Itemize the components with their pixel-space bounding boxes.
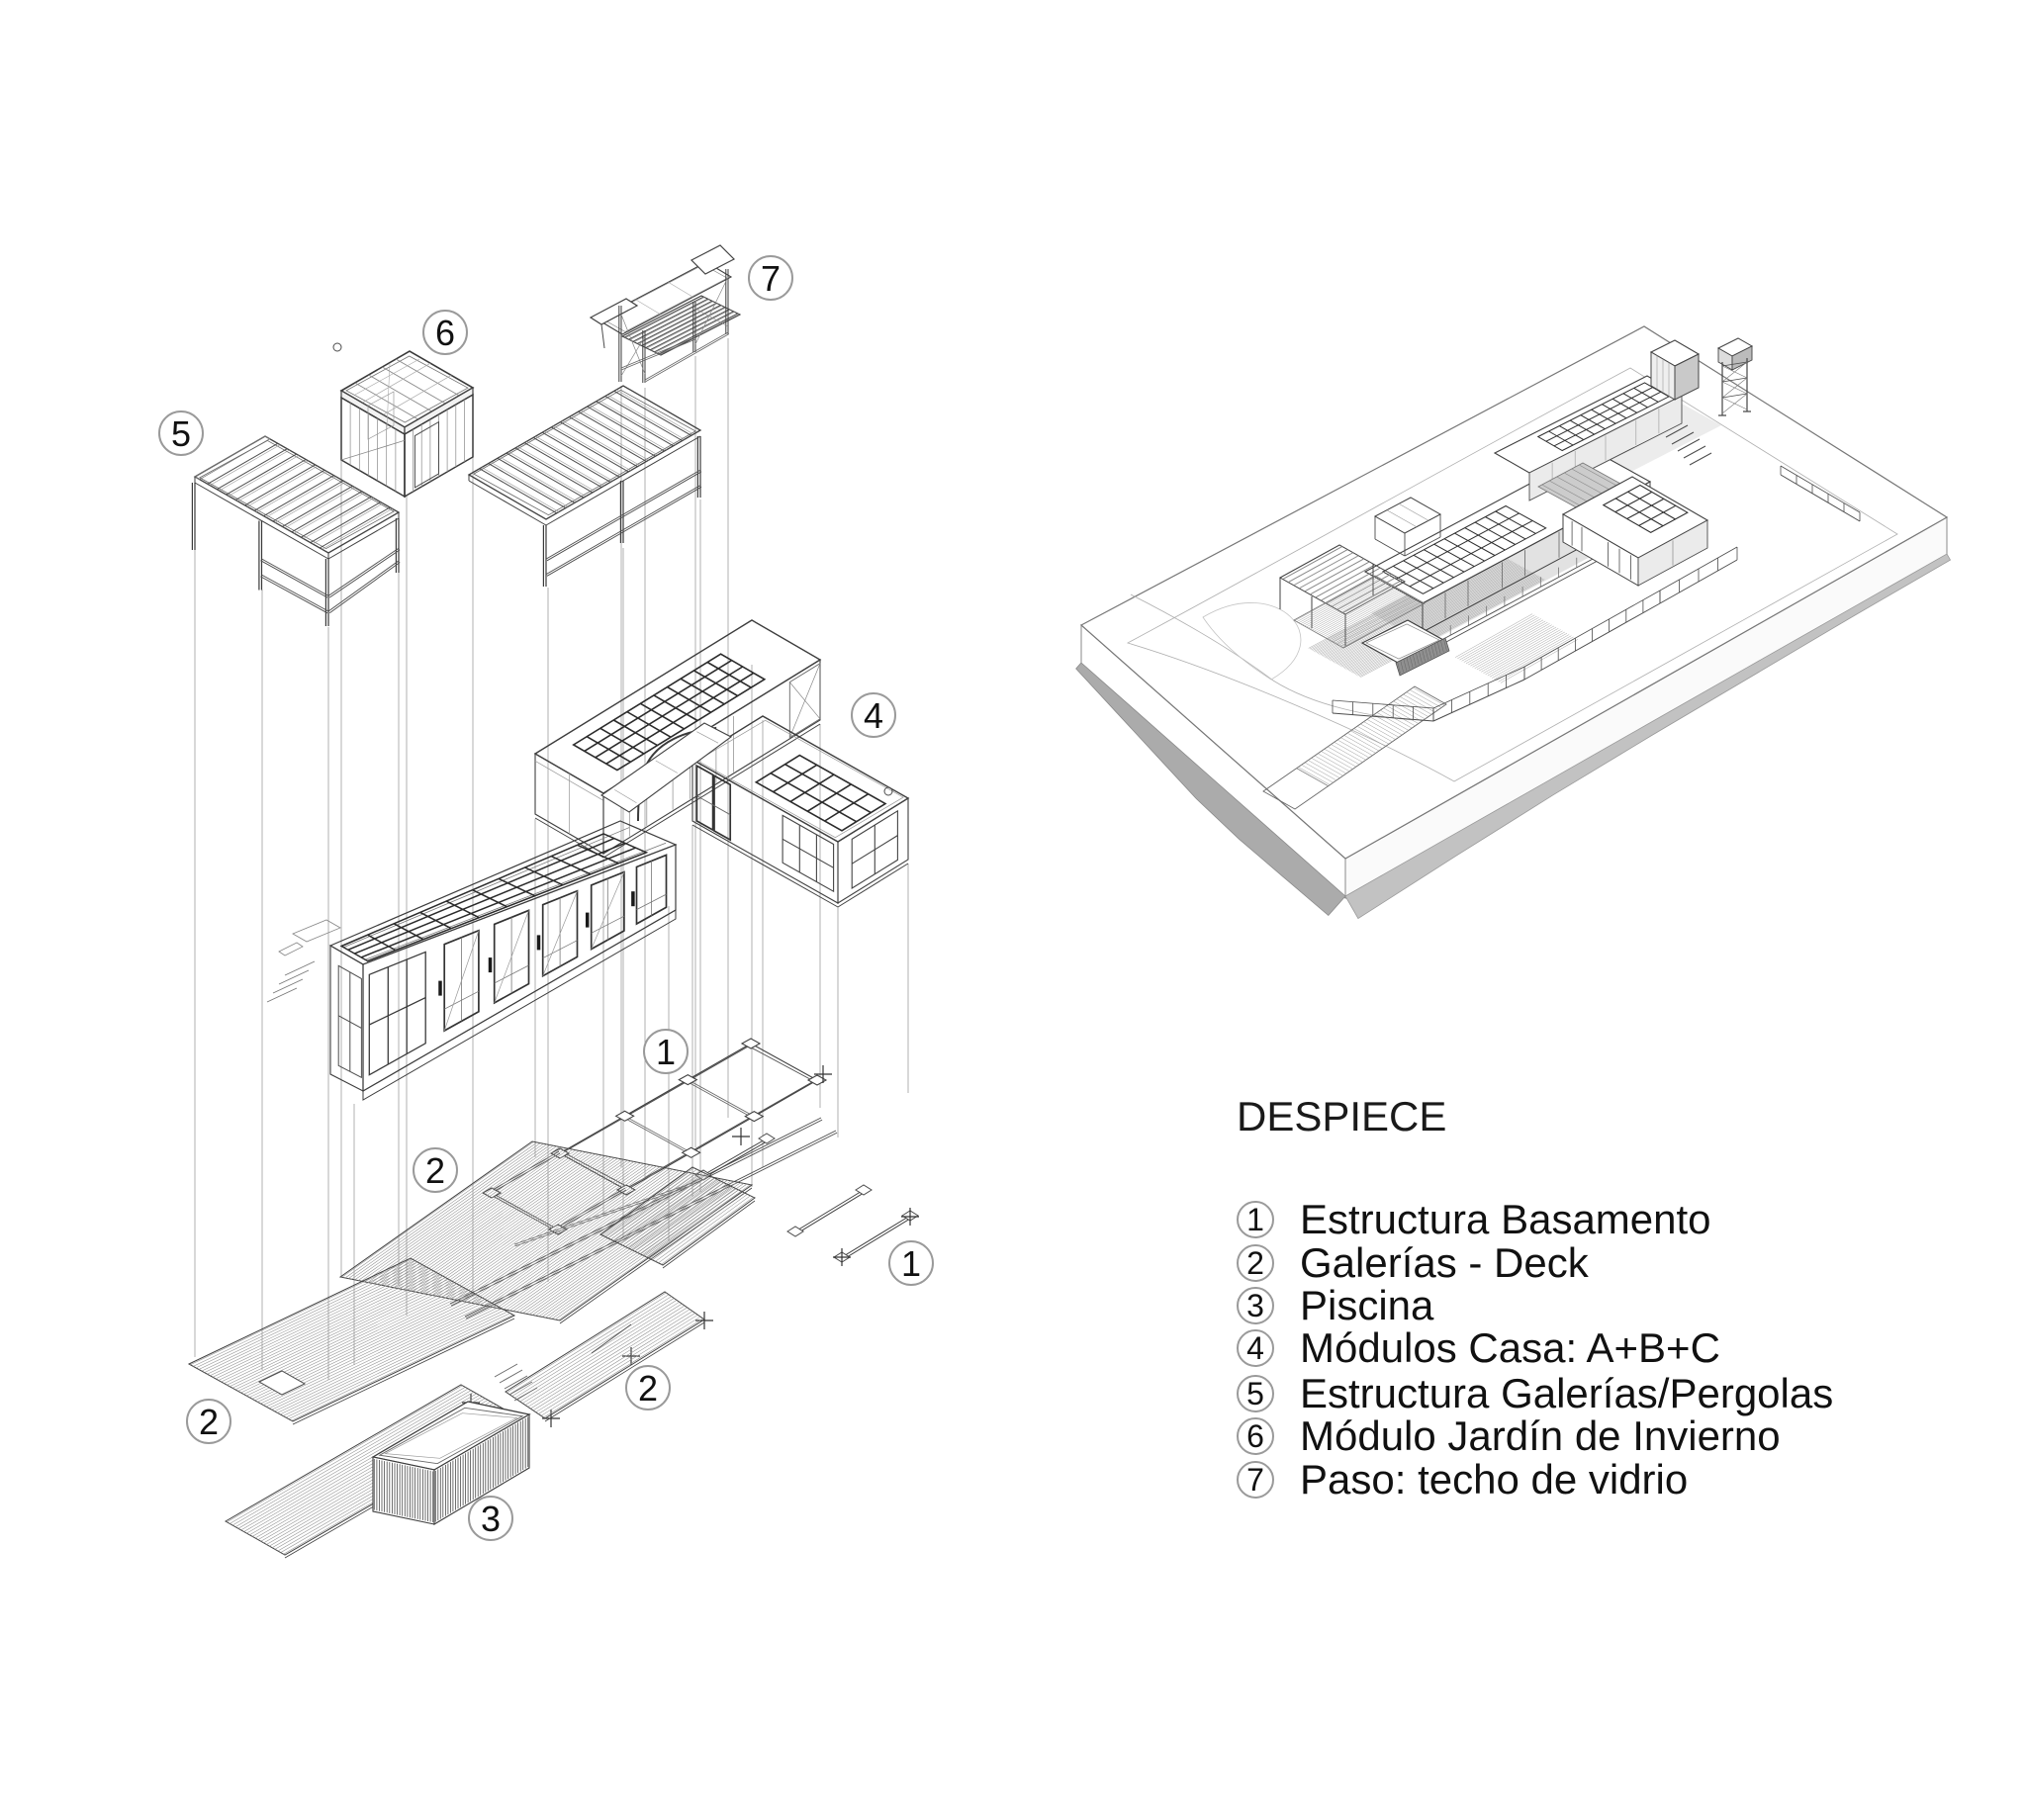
- svg-text:2: 2: [1246, 1245, 1264, 1281]
- svg-text:3: 3: [481, 1499, 501, 1539]
- svg-text:2: 2: [199, 1402, 219, 1442]
- svg-text:Estructura Basamento: Estructura Basamento: [1300, 1196, 1711, 1242]
- svg-text:4: 4: [864, 695, 883, 736]
- svg-text:6: 6: [1246, 1418, 1264, 1454]
- svg-text:Piscina: Piscina: [1300, 1282, 1434, 1328]
- svg-text:1: 1: [901, 1243, 921, 1284]
- svg-text:Galerías - Deck: Galerías - Deck: [1300, 1239, 1590, 1286]
- svg-text:6: 6: [435, 313, 455, 353]
- svg-text:Paso: techo de vidrio: Paso: techo de vidrio: [1300, 1456, 1688, 1502]
- svg-text:5: 5: [171, 413, 191, 454]
- svg-text:1: 1: [656, 1032, 676, 1072]
- svg-text:4: 4: [1246, 1330, 1264, 1366]
- svg-text:1: 1: [1246, 1202, 1264, 1237]
- svg-text:2: 2: [425, 1150, 445, 1191]
- svg-text:Módulos Casa: A+B+C: Módulos Casa: A+B+C: [1300, 1324, 1720, 1371]
- svg-text:DESPIECE: DESPIECE: [1237, 1093, 1446, 1139]
- svg-text:7: 7: [1246, 1462, 1264, 1498]
- svg-text:7: 7: [761, 258, 781, 299]
- svg-text:2: 2: [638, 1368, 658, 1409]
- svg-text:5: 5: [1246, 1376, 1264, 1411]
- svg-text:Estructura Galerías/Pergolas: Estructura Galerías/Pergolas: [1300, 1370, 1833, 1416]
- svg-text:Módulo Jardín de Invierno: Módulo Jardín de Invierno: [1300, 1412, 1781, 1459]
- svg-text:3: 3: [1246, 1288, 1264, 1323]
